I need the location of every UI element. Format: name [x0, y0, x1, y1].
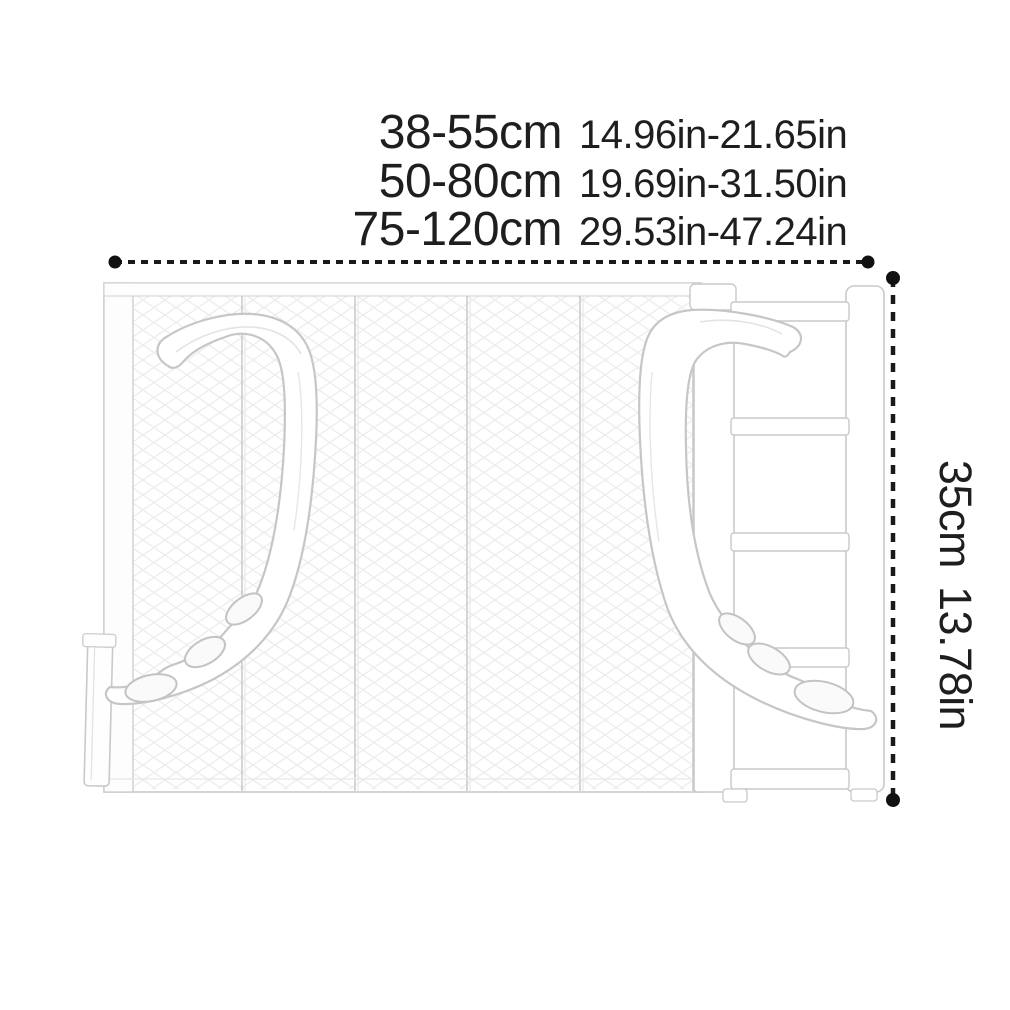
- shelf-panel: [104, 283, 701, 792]
- width-inches-label: 14.96in-21.65in: [579, 113, 847, 158]
- rack-inner-rail: [694, 286, 734, 792]
- width-dimension-row: 50-80cm 19.69in-31.50in: [340, 154, 847, 203]
- width-dimension-row: 38-55cm 14.96in-21.65in: [340, 105, 847, 154]
- height-dimension-line: [886, 271, 900, 807]
- height-inches-label: 13.78in: [929, 586, 981, 730]
- dimension-endpoint-dot: [886, 793, 900, 807]
- width-cm-label: 50-80cm: [340, 154, 562, 209]
- width-dimension-row: 75-120cm 29.53in-47.24in: [340, 202, 847, 251]
- dimension-endpoint-dot: [862, 256, 875, 269]
- product-dimension-diagram: 38-55cm 14.96in-21.65in 50-80cm 19.69in-…: [0, 0, 1010, 1010]
- width-dimension-line: [109, 256, 875, 269]
- dimension-endpoint-dot: [886, 271, 900, 285]
- height-cm-label: 35cm: [929, 460, 981, 568]
- width-dimension-labels: 38-55cm 14.96in-21.65in 50-80cm 19.69in-…: [340, 105, 847, 251]
- dimension-endpoint-dot: [109, 256, 122, 269]
- height-dimension-label: 35cm 13.78in: [929, 460, 981, 730]
- width-cm-label: 75-120cm: [340, 202, 562, 257]
- width-inches-label: 19.69in-31.50in: [579, 162, 847, 207]
- width-cm-label: 38-55cm: [340, 105, 562, 160]
- width-inches-label: 29.53in-47.24in: [579, 210, 847, 255]
- panel-top-edge: [104, 283, 701, 296]
